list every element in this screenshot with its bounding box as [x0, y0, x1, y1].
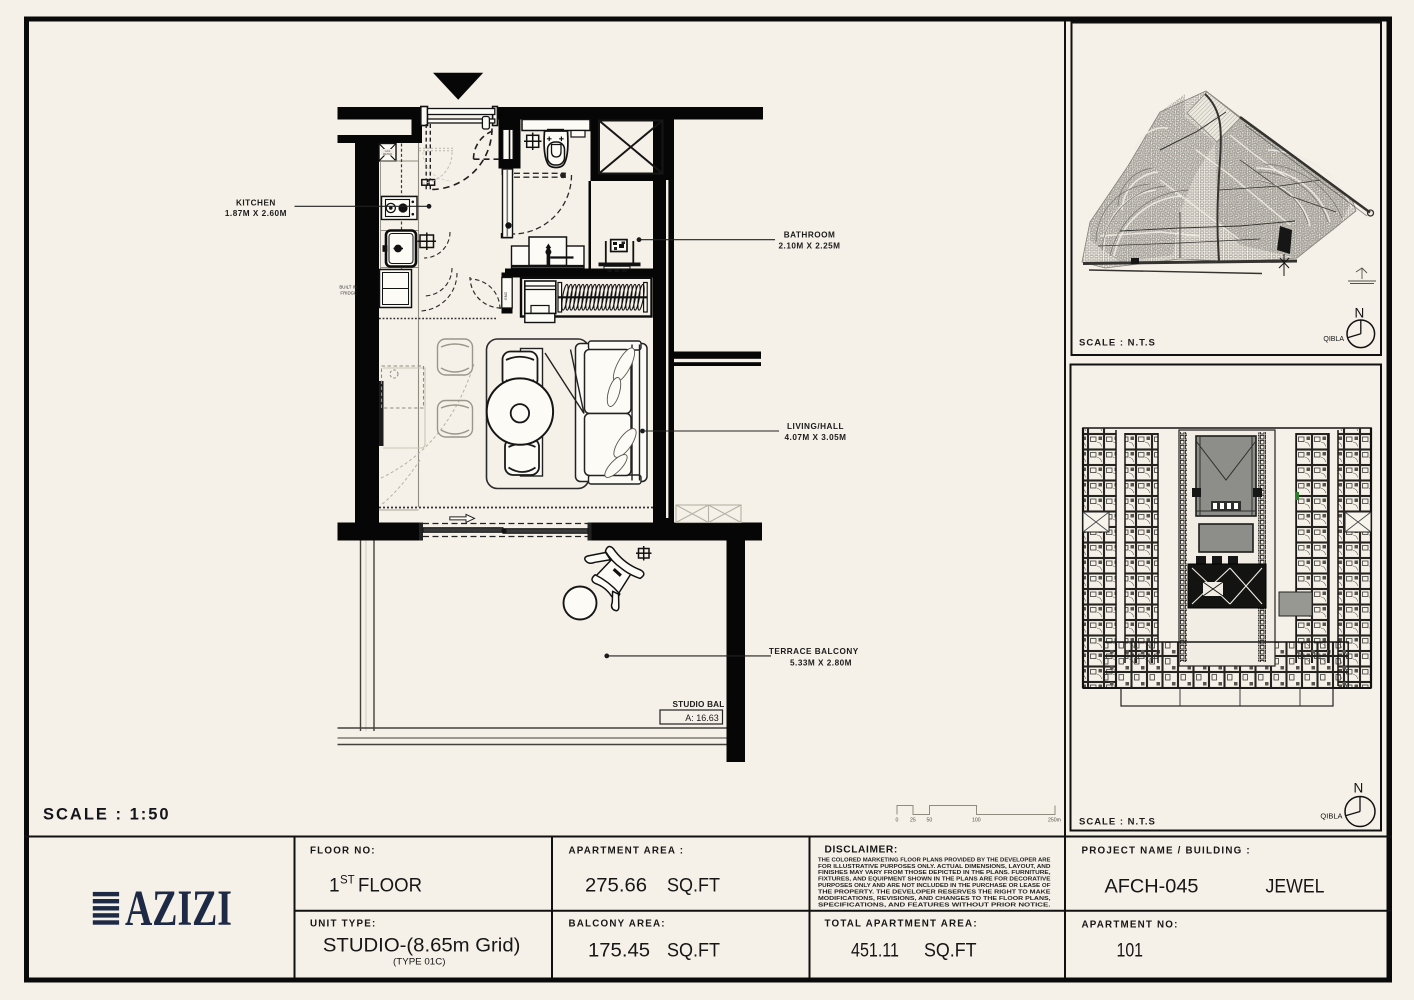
svg-text:DISCLAIMER:: DISCLAIMER: — [825, 845, 898, 856]
svg-text:250m: 250m — [1048, 818, 1061, 824]
svg-text:25: 25 — [910, 818, 916, 824]
svg-text:THE COLORED MARKETING FLOOR PL: THE COLORED MARKETING FLOOR PLANS PROVID… — [818, 857, 1051, 863]
svg-text:UNIT TYPE:: UNIT TYPE: — [310, 919, 376, 930]
svg-text:BALCONY AREA:: BALCONY AREA: — [569, 919, 666, 930]
svg-text:ST: ST — [340, 875, 355, 887]
svg-text:100: 100 — [972, 818, 981, 824]
svg-text:275.66: 275.66 — [585, 876, 647, 897]
svg-text:101: 101 — [1117, 941, 1144, 962]
svg-text:GND: GND — [504, 292, 508, 301]
svg-text:5.33M X 2.80M: 5.33M X 2.80M — [790, 658, 852, 667]
svg-text:SCALE : N.T.S: SCALE : N.T.S — [1079, 338, 1156, 349]
svg-text:FLOOR NO:: FLOOR NO: — [310, 846, 376, 857]
svg-text:METER: METER — [383, 152, 392, 156]
svg-text:A: 16.63: A: 16.63 — [685, 713, 719, 723]
svg-text:SQ.FT: SQ.FT — [924, 941, 977, 962]
svg-text:AZIZI: AZIZI — [125, 881, 232, 937]
svg-text:JEWEL: JEWEL — [1266, 877, 1325, 898]
svg-text:SQ.FT: SQ.FT — [667, 876, 720, 897]
svg-text:4.07M X 3.05M: 4.07M X 3.05M — [784, 433, 846, 442]
svg-text:BUILT IN: BUILT IN — [339, 285, 357, 290]
svg-text:50: 50 — [927, 818, 933, 824]
svg-text:(TYPE 01C): (TYPE 01C) — [393, 957, 446, 967]
svg-text:N: N — [1355, 306, 1365, 321]
svg-text:TERRACE BALCONY: TERRACE BALCONY — [769, 647, 859, 656]
svg-text:QIBLA: QIBLA — [1320, 812, 1342, 821]
svg-text:SQ.FT: SQ.FT — [667, 941, 720, 962]
svg-text:175.45: 175.45 — [588, 941, 650, 962]
svg-text:TOTAL APARTMENT AREA:: TOTAL APARTMENT AREA: — [825, 919, 978, 930]
svg-text:THE PROPERTY. THE DEVELOPER RE: THE PROPERTY. THE DEVELOPER RESERVES THE… — [818, 890, 1051, 896]
svg-text:2.10M X 2.25M: 2.10M X 2.25M — [778, 241, 840, 250]
svg-text:N: N — [1354, 781, 1364, 796]
svg-text:MODIFICATIONS, REVISIONS, AND: MODIFICATIONS, REVISIONS, AND CHANGES TO… — [818, 896, 1051, 902]
svg-text:PROJECT NAME / BUILDING :: PROJECT NAME / BUILDING : — [1082, 846, 1251, 857]
svg-text:PURPOSES ONLY AND ARE NOT INCL: PURPOSES ONLY AND ARE NOT INCLUDED IN TH… — [818, 883, 1051, 889]
svg-text:APARTMENT NO:: APARTMENT NO: — [1082, 920, 1179, 931]
svg-text:QIBLA: QIBLA — [1323, 336, 1344, 343]
svg-text:1.87M X 2.60M: 1.87M X 2.60M — [225, 209, 287, 218]
svg-text:STUDIO BAL: STUDIO BAL — [672, 700, 724, 709]
svg-text:FRIDGE: FRIDGE — [340, 291, 357, 296]
svg-text:BATHROOM: BATHROOM — [784, 230, 836, 239]
svg-text:SPECIFICATIONS, AND FEATURES W: SPECIFICATIONS, AND FEATURES WITHOUT PRI… — [818, 902, 1051, 908]
svg-text:AFCH-045: AFCH-045 — [1105, 877, 1199, 898]
svg-text:APARTMENT AREA :: APARTMENT AREA : — [569, 846, 685, 857]
svg-text:KITCHEN: KITCHEN — [236, 199, 276, 208]
svg-text:SCALE : 1:50: SCALE : 1:50 — [43, 806, 171, 824]
svg-text:STUDIO-(8.65m Grid): STUDIO-(8.65m Grid) — [323, 936, 521, 957]
svg-text:FLOOR: FLOOR — [358, 876, 422, 897]
svg-text:1: 1 — [329, 876, 340, 897]
svg-text:451.11: 451.11 — [851, 941, 899, 962]
svg-text:FIXTURES, AND EQUIPMENT SHOWN: FIXTURES, AND EQUIPMENT SHOWN IN THE PLA… — [818, 877, 1051, 883]
svg-text:SCALE : N.T.S: SCALE : N.T.S — [1079, 817, 1156, 828]
svg-text:FOR ILLUSTRATIVE PURPOSES ONLY: FOR ILLUSTRATIVE PURPOSES ONLY. ACTUAL D… — [818, 864, 1051, 870]
svg-text:FINISHES MAY VARY FROM THOSE D: FINISHES MAY VARY FROM THOSE DEPICTED IN… — [818, 870, 1051, 876]
svg-text:LIVING/HALL: LIVING/HALL — [787, 422, 844, 431]
svg-text:0: 0 — [896, 818, 899, 824]
